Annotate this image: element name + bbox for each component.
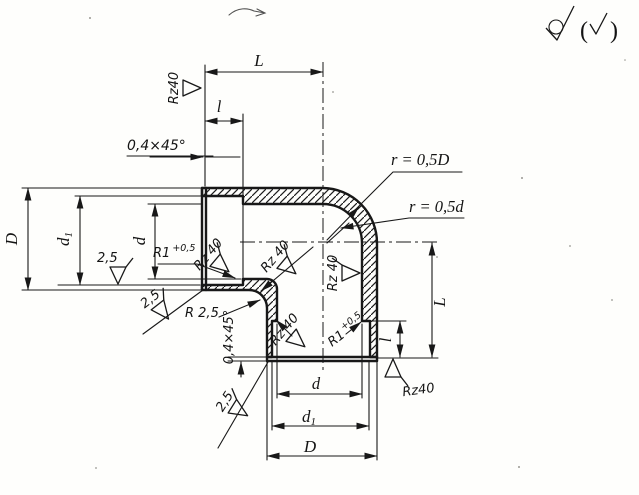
scan-dot <box>521 177 523 179</box>
finish-marks: Rz40 Rz 40 Rz 40 Rz 40 Rz 40 Rz40 2,5 <box>97 72 436 425</box>
chamfer-label-top: 0,4×45° <box>127 138 186 154</box>
ra25-label: 2,5 <box>138 287 164 312</box>
dim-label-l-top: l <box>217 97 222 116</box>
flag-tail <box>126 258 133 267</box>
radius-arrow-outer <box>327 207 359 240</box>
rz40-flag-left-bore: Rz 40 <box>191 236 241 286</box>
rz40-label: Rz40 <box>167 72 182 104</box>
scan-dot <box>332 91 334 93</box>
dim-label-l-right: l <box>376 337 395 342</box>
d1-subscript: 1 <box>311 416 317 428</box>
roughness-triangle-icon <box>110 267 126 284</box>
radius-arrow-inner <box>327 223 349 243</box>
scan-dot <box>95 467 97 469</box>
scan-dot <box>518 466 520 468</box>
scan-dot <box>569 245 571 247</box>
ra25-mark-left: 2,5 <box>97 251 133 284</box>
outer-corner-radius-label: r = 0,5D <box>391 150 449 169</box>
rz40-flag-right-bore: Rz 40 <box>326 255 360 292</box>
paren-open: ( <box>580 18 588 44</box>
dim-label-d1-bottom: d1 <box>302 407 316 428</box>
roughness-triangle-icon <box>385 359 401 377</box>
pen-mark-artifact <box>229 9 265 16</box>
r1-tolerance: +0,5 <box>172 243 195 254</box>
d1-subscript: 1 <box>63 232 75 238</box>
dim-label-d-left: d <box>130 236 149 245</box>
r1-base: R1 <box>153 246 170 261</box>
scan-dot <box>624 59 626 61</box>
paren-close: ) <box>610 18 618 44</box>
roughness-triangle-icon <box>342 265 360 281</box>
dim-label-L-top: L <box>253 51 263 70</box>
elbow-fitting-drawing: Rz40 Rz 40 Rz 40 Rz 40 Rz 40 Rz40 2,5 <box>0 0 639 495</box>
ra25-label: 2,5 <box>97 251 118 266</box>
dim-label-L-right: L <box>430 297 449 307</box>
rz40-flag-bottom-face: Rz40 <box>385 359 436 400</box>
dim-label-D-left: D <box>2 232 21 246</box>
scanned-drawing-page: Rz40 Rz 40 Rz 40 Rz 40 Rz 40 Rz40 2,5 <box>0 0 639 495</box>
rz40-label: Rz40 <box>401 381 435 400</box>
chamfer-label-bottom: 0,4×45° <box>222 310 237 365</box>
scan-dot <box>436 256 438 258</box>
rz40-label: Rz 40 <box>326 255 341 292</box>
rz40-flag-left-face: Rz40 <box>167 72 201 104</box>
roughness-triangle-icon <box>183 80 201 96</box>
scan-dot <box>611 299 613 301</box>
small-check-icon <box>590 13 607 34</box>
fillet-label-bottom: R1+0,5 <box>323 310 367 350</box>
no-machining-circle-icon <box>549 20 563 34</box>
dim-label-d1-left: d1 <box>54 232 75 246</box>
dim-label-d-bottom: d <box>312 374 321 393</box>
crotch-radius-label: R 2,5 <box>185 306 219 321</box>
fillet-label-left: R1+0,5 <box>153 243 195 261</box>
dim-label-D-bottom: D <box>303 437 317 456</box>
inner-corner-radius-label: r = 0,5d <box>409 197 464 216</box>
scan-dot <box>89 17 91 19</box>
general-roughness-mark: ( ) <box>546 6 618 44</box>
